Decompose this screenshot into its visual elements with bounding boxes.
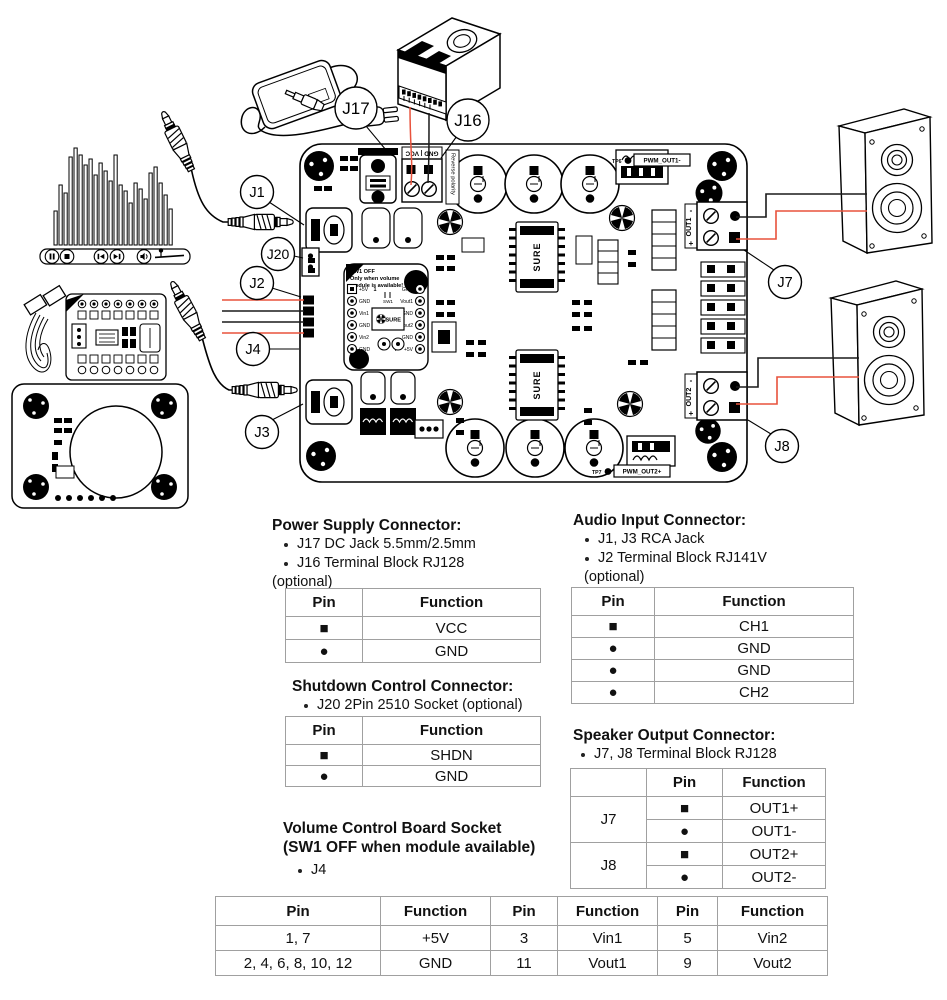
j4-pin-label: GND (359, 323, 371, 329)
pin-symbol: ■ (647, 797, 723, 820)
shutdown-section: Shutdown Control Connector: J20 2Pin 251… (292, 677, 523, 715)
table-row: J7 ■ OUT1+ (571, 797, 826, 820)
bullet-dot (585, 557, 589, 561)
pause-icon (45, 250, 59, 264)
power-supply-title: Power Supply Connector: (272, 516, 476, 535)
pin-function: OUT1- (723, 820, 826, 843)
table-row: 2, 4, 6, 8, 10, 12 GND 11 Vout1 9 Vout2 (216, 951, 828, 976)
wiring-diagram: GND | VCC Reverse polarity (0, 0, 947, 512)
svg-text:J2: J2 (249, 276, 264, 292)
pad (405, 237, 411, 243)
column-header: Function (655, 588, 854, 616)
pin-symbol: ● (572, 682, 655, 704)
j4-pin-label: GND (359, 299, 371, 305)
pin-numbers: 9 (658, 951, 718, 976)
callout-j20: J20 (262, 238, 295, 271)
pin-symbol: ■ (286, 745, 363, 766)
volume-knob-board (12, 384, 188, 508)
corner-capacitor (304, 151, 334, 181)
table-row: 1, 7 +5V 3 Vin1 5 Vin2 (216, 926, 828, 951)
rca-jack-j3 (306, 380, 352, 424)
j4-pin-label: Vin1 (359, 311, 369, 317)
bullet-dot (284, 543, 288, 547)
speaker-terminal-j7: - OUT1 + (685, 202, 747, 250)
j4-pin-label: +5V (359, 287, 369, 293)
column-header: Pin (491, 897, 558, 926)
audio-plug (232, 382, 297, 397)
column-header: Function (723, 769, 826, 797)
table-row: ■ SHDN (286, 745, 541, 766)
aux-connector (415, 420, 443, 438)
pin-symbol: ● (647, 820, 723, 843)
pin-numbers: 5 (658, 926, 718, 951)
optional-note: (optional) (584, 568, 767, 587)
pin-function: OUT2- (723, 866, 826, 889)
bullet-text: J2 Terminal Block RJ141V (598, 549, 767, 568)
pin-function: VCC (363, 617, 541, 640)
out2-label: OUT2 (686, 388, 693, 407)
ac-power-adapter (241, 58, 398, 136)
psu-gnd-wire-black (428, 113, 429, 183)
audio-input-section: Audio Input Connector: J1, J3 RCA Jack J… (573, 511, 767, 587)
bullet-dot (585, 538, 589, 542)
pwm-out2-text: PWM_OUT2+ (623, 469, 662, 476)
reverse-polarity-text: Reverse polarity (450, 153, 456, 195)
board-connection-manual-page: GND | VCC Reverse polarity (0, 0, 947, 1000)
pin-function: GND (363, 766, 541, 787)
speaker-right-1 (839, 109, 932, 253)
pin-symbol: ■ (572, 616, 655, 638)
bullet-text: J7, J8 Terminal Block RJ128 (594, 745, 777, 764)
corner-capacitor (707, 442, 737, 472)
bullet-dot (284, 562, 288, 566)
sw1-note-3: module is available! (350, 283, 403, 289)
pin-symbol: ■ (647, 843, 723, 866)
connector-name: J7 (571, 797, 647, 843)
bullet-item: J7, J8 Terminal Block RJ128 (569, 745, 777, 764)
dc-jack-j17 (358, 148, 398, 204)
column-header: Pin (286, 717, 363, 745)
rca-jack-j1 (306, 208, 352, 252)
j4-pin-label: Vin2 (359, 335, 369, 341)
pin-symbol: ● (572, 660, 655, 682)
audio-plug (228, 214, 293, 229)
pin-numbers: 2, 4, 6, 8, 10, 12 (216, 951, 381, 976)
filter-capacitor (505, 155, 563, 213)
callout-j17: J17 (335, 87, 377, 129)
pwm-out1-text: PWM_OUT1- (643, 158, 680, 165)
amplifier-chip-1: SURE (509, 222, 565, 292)
column-header: Function (363, 717, 541, 745)
audio-source-player (40, 148, 190, 264)
speaker-output-section: Speaker Output Connector: J7, J8 Termina… (573, 726, 777, 764)
callout-j2: J2 (241, 267, 274, 300)
j4-pin-label: GND (402, 335, 414, 341)
pin-symbol: ● (647, 866, 723, 889)
table-row: ■ CH1 (572, 616, 854, 638)
snubber-stack (701, 262, 745, 353)
speaker-right-2 (831, 281, 924, 425)
j4-pin1-marker: 1 (374, 287, 377, 293)
svg-text:J20: J20 (267, 246, 290, 262)
power-supply-section: Power Supply Connector: J17 DC Jack 5.5m… (272, 516, 476, 592)
tp7-label: TP7 (592, 470, 602, 476)
pin-function: Vout1 (558, 951, 658, 976)
out1-label: OUT1 (686, 218, 693, 237)
audio-plug (165, 278, 209, 343)
pin-function: Vin1 (558, 926, 658, 951)
column-header: Pin (647, 769, 723, 797)
pin-function: CH2 (655, 682, 854, 704)
svg-text:J16: J16 (454, 111, 481, 130)
bullet-dot (581, 753, 585, 757)
thermal-pad (438, 390, 463, 415)
callout-j16: J16 (447, 99, 489, 141)
j4-pin-label: Vout1 (400, 299, 413, 305)
player-controls (40, 248, 190, 264)
pin-function: Vout2 (718, 951, 828, 976)
svg-text:J1: J1 (249, 185, 264, 201)
volume-socket-title-line1: Volume Control Board Socket (283, 819, 535, 838)
bullet-item: J20 2Pin 2510 Socket (optional) (292, 696, 523, 715)
bullet-text: J16 Terminal Block RJ128 (297, 554, 464, 573)
sw1-label: SW1 (383, 299, 393, 304)
speaker-output-pin-table: Pin Function J7 ■ OUT1+ ● OUT1- J8 ■ OUT… (570, 768, 826, 889)
table-row: ● GND (286, 766, 541, 787)
svg-text:J7: J7 (777, 275, 792, 291)
out1-minus: - (690, 206, 693, 215)
callout-j1: J1 (241, 176, 274, 209)
callout-j4: J4 (237, 333, 270, 366)
column-header: Function (381, 897, 491, 926)
out2-plus: + (689, 409, 694, 418)
thermal-pad (610, 206, 635, 231)
pin-numbers: 1, 7 (216, 926, 381, 951)
power-terminal-j16: GND | VCC (402, 147, 442, 202)
svg-text:J8: J8 (774, 439, 789, 455)
reverse-polarity-label: Reverse polarity (446, 150, 459, 204)
pin-function: GND (363, 640, 541, 663)
j4-pin-label: GND (359, 347, 371, 353)
volume-socket-j4: SW1 OFF Only when volume module is avail… (344, 264, 428, 370)
corner-capacitor (707, 151, 737, 181)
bullet-text: J4 (311, 861, 326, 880)
pin-function: OUT2+ (723, 843, 826, 866)
table-row: ● GND (286, 640, 541, 663)
sw1-note-2: Only when volume (350, 276, 399, 282)
volume-knob (70, 406, 162, 498)
pin-symbol: ● (572, 638, 655, 660)
corner-capacitor (306, 441, 336, 471)
speaker-terminal-j8: - OUT2 + (685, 372, 747, 420)
pin-function: GND (655, 638, 854, 660)
pin-numbers: 3 (491, 926, 558, 951)
column-header: Pin (286, 589, 363, 617)
pin-symbol: ● (286, 766, 363, 787)
power-supply-pin-table: Pin Function ■ VCC ● GND (285, 588, 541, 663)
bullet-item: J2 Terminal Block RJ141V (573, 549, 767, 568)
pin-numbers: 11 (491, 951, 558, 976)
thermal-pad (618, 392, 643, 417)
pin-function: GND (655, 660, 854, 682)
filter-capacitor (561, 155, 619, 213)
capacitor (695, 418, 721, 444)
column-header (571, 769, 647, 797)
table-row: ● GND (572, 638, 854, 660)
switching-power-supply (398, 18, 500, 120)
shutdown-pin-table: Pin Function ■ SHDN ● GND (285, 716, 541, 787)
filter-capacitor (506, 419, 564, 477)
power-terminal-label: GND | VCC (405, 150, 438, 157)
volume-module-pcb (66, 294, 166, 380)
tp6-label: TP6 (612, 159, 622, 165)
sw1-note-1: SW1 OFF (350, 269, 375, 275)
audio-input-pin-table: Pin Function ■ CH1 ● GND ● GND ● CH2 (571, 587, 854, 704)
callout-j8: J8 (766, 430, 799, 463)
j4-pin-label: GND (402, 287, 414, 293)
audio-input-title: Audio Input Connector: (573, 511, 767, 530)
table-row: ● CH2 (572, 682, 854, 704)
svg-text:J4: J4 (245, 342, 260, 358)
svg-text:J3: J3 (254, 425, 269, 441)
bullet-dot (304, 704, 308, 708)
pin-function: SHDN (363, 745, 541, 766)
bullet-item: J1, J3 RCA Jack (573, 530, 767, 549)
pin-function: GND (381, 951, 491, 976)
pin-function: +5V (381, 926, 491, 951)
out1-plus: + (689, 239, 694, 248)
audio-cable-2 (165, 278, 297, 397)
out2-minus: - (690, 376, 693, 385)
column-header: Function (558, 897, 658, 926)
column-header: Function (363, 589, 541, 617)
column-header: Pin (658, 897, 718, 926)
connector-name: J8 (571, 843, 647, 889)
pin-symbol: ■ (286, 617, 363, 640)
output-inductor-l4 (627, 436, 675, 466)
amplifier-chip-2: SURE (509, 350, 565, 420)
table-row: ● GND (572, 660, 854, 682)
table-row: J8 ■ OUT2+ (571, 843, 826, 866)
j4-pinout-table: Pin Function Pin Function Pin Function 1… (215, 896, 828, 976)
column-header: Pin (216, 897, 381, 926)
volume-socket-section: Volume Control Board Socket (SW1 OFF whe… (283, 819, 535, 880)
pin-function: Vin2 (718, 926, 828, 951)
column-header: Pin (572, 588, 655, 616)
sure-logo-text: SURE (385, 318, 401, 324)
ribbon-cable (24, 286, 65, 372)
bullet-dot (298, 869, 302, 873)
spectrum-bars (54, 148, 172, 245)
chip-brand-text: SURE (532, 370, 542, 399)
svg-text:J17: J17 (342, 99, 369, 118)
callout-j3: J3 (246, 416, 279, 449)
speaker-output-title: Speaker Output Connector: (573, 726, 777, 745)
thermal-pad (438, 210, 463, 235)
volume-socket-title-line2: (SW1 OFF when module available) (283, 838, 535, 857)
amplifier-board: GND | VCC Reverse polarity (300, 144, 747, 482)
bullet-text: J20 2Pin 2510 Socket (optional) (317, 696, 523, 715)
callout-j7: J7 (769, 266, 802, 299)
pad (373, 237, 379, 243)
pin-symbol: ● (286, 640, 363, 663)
pin-function: OUT1+ (723, 797, 826, 820)
filter-capacitor (446, 419, 504, 477)
shutdown-title: Shutdown Control Connector: (292, 677, 523, 696)
column-header: Function (718, 897, 828, 926)
audio-plug (156, 108, 198, 173)
chip-brand-text: SURE (532, 242, 542, 271)
pin-function: CH1 (655, 616, 854, 638)
bullet-item: J17 DC Jack 5.5mm/2.5mm (272, 535, 476, 554)
bullet-text: J1, J3 RCA Jack (598, 530, 704, 549)
j4-pin-label: +5V (404, 347, 414, 353)
bullet-item: J16 Terminal Block RJ128 (272, 554, 476, 573)
bullet-text: J17 DC Jack 5.5mm/2.5mm (297, 535, 476, 554)
table-row: ■ VCC (286, 617, 541, 640)
bullet-item: J4 (286, 861, 535, 880)
